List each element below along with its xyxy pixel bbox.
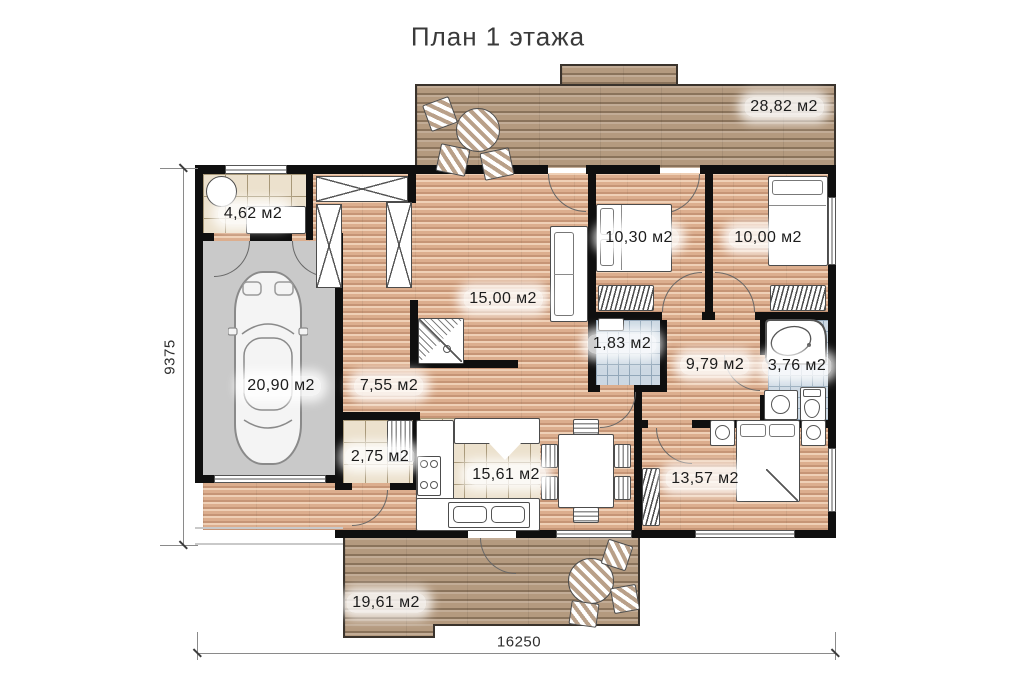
- area-label-bedroom-left: 10,30 м2: [599, 228, 679, 248]
- closet: [316, 176, 408, 202]
- round-sink: [206, 176, 237, 207]
- bathroom-sink: [764, 390, 798, 420]
- window: [225, 165, 287, 174]
- pillow: [769, 424, 795, 437]
- area-label-terrace-top: 28,82 м2: [744, 97, 824, 117]
- wall-segment: [335, 530, 468, 538]
- wall-segment: [702, 312, 715, 320]
- dining-table: [558, 434, 614, 508]
- wall-segment: [195, 233, 214, 241]
- driveway: [195, 527, 343, 545]
- wall-segment: [588, 165, 596, 392]
- sink-basin: [453, 506, 487, 523]
- chair: [573, 419, 599, 435]
- burner: [430, 460, 438, 468]
- pillow: [740, 424, 766, 437]
- floor-plan: План 1 этажа: [0, 0, 1024, 696]
- area-label-bedroom-bottom: 13,57 м2: [665, 469, 745, 489]
- pillow: [772, 180, 823, 195]
- wall-segment: [705, 165, 713, 320]
- wall-segment: [195, 165, 203, 483]
- dimension-height: 9375: [162, 336, 179, 377]
- page-title: План 1 этажа: [411, 22, 585, 53]
- dimension-extension: [197, 632, 198, 660]
- chair: [614, 476, 631, 500]
- area-label-garage: 20,90 м2: [241, 376, 321, 396]
- wall-segment: [335, 412, 420, 420]
- dimension-extension: [160, 545, 198, 546]
- window: [828, 197, 836, 265]
- kitchen-counter-corner: [488, 442, 522, 460]
- sofa-cushion-divider: [554, 274, 574, 275]
- area-label-bedroom-right: 10,00 м2: [728, 228, 808, 248]
- window: [556, 530, 632, 538]
- area-label-living: 15,00 м2: [463, 289, 543, 309]
- double-bed: [736, 420, 800, 502]
- blanket-fold: [766, 469, 798, 501]
- wall-segment: [516, 530, 556, 538]
- chair: [573, 507, 599, 523]
- patio-chair: [610, 584, 640, 614]
- area-label-kitchen: 15,61 м2: [466, 465, 546, 485]
- double-bed: [768, 176, 828, 266]
- area-label-laundry: 2,75 м2: [345, 447, 415, 467]
- area-label-wc: 1,83 м2: [587, 334, 657, 354]
- fireplace-diagonal: [419, 319, 462, 362]
- wall-segment: [634, 385, 642, 530]
- dimension-line-horizontal: [197, 653, 836, 654]
- burner: [420, 460, 428, 468]
- wall-segment: [195, 475, 214, 483]
- patio-chair: [568, 600, 599, 628]
- dimension-line-vertical: [183, 168, 184, 546]
- wardrobe: [770, 285, 826, 311]
- area-label-utility: 4,62 м2: [218, 204, 288, 224]
- area-label-hall: 7,55 м2: [354, 376, 424, 396]
- lamp: [806, 425, 821, 440]
- blanket-line: [769, 205, 826, 206]
- burner: [430, 481, 438, 489]
- wall-segment: [586, 165, 660, 174]
- wall-segment: [660, 320, 667, 385]
- garage-door: [214, 475, 326, 483]
- sink-basin: [491, 506, 525, 523]
- lamp: [715, 425, 730, 440]
- sofa: [550, 226, 588, 322]
- kitchen-counter-top: [454, 418, 540, 444]
- wardrobe: [598, 285, 654, 311]
- dimension-width: 16250: [494, 634, 544, 651]
- car-top-view: [228, 268, 308, 468]
- wall-segment: [632, 530, 695, 538]
- toilet-bowl: [804, 399, 820, 418]
- stove: [417, 456, 441, 496]
- wall-segment: [700, 165, 836, 174]
- window: [695, 530, 795, 538]
- sink-bowl: [771, 395, 790, 414]
- wall-segment: [588, 385, 600, 392]
- wall-segment: [335, 483, 352, 490]
- wall-segment: [640, 385, 667, 392]
- closet: [316, 204, 342, 288]
- wall-segment: [250, 233, 292, 241]
- wall-segment: [408, 165, 416, 203]
- chair: [541, 444, 558, 468]
- burner: [420, 481, 428, 489]
- patio-chair: [435, 143, 470, 177]
- area-label-bathroom: 3,76 м2: [762, 356, 832, 376]
- dimension-extension: [160, 168, 198, 169]
- area-label-terrace-bottom: 19,61 м2: [346, 593, 426, 613]
- closet: [386, 202, 412, 288]
- area-label-hall-bedrooms: 9,79 м2: [680, 355, 750, 375]
- wall-segment: [306, 165, 313, 240]
- wall-segment: [795, 530, 836, 538]
- patio-table: [456, 108, 500, 152]
- terrace-bottom-step: [343, 624, 435, 638]
- wardrobe: [642, 468, 660, 526]
- double-sink: [448, 502, 530, 528]
- dimension-extension: [835, 632, 836, 660]
- wall-segment: [326, 475, 343, 483]
- corner-fireplace: [418, 318, 464, 364]
- wall-segment: [410, 300, 418, 368]
- nightstand: [710, 420, 735, 446]
- toilet-tank: [803, 389, 821, 397]
- nightstand: [801, 420, 826, 446]
- washbasin: [598, 318, 624, 331]
- toilet: [800, 387, 826, 421]
- fireplace-dot: [443, 345, 451, 353]
- chair: [614, 444, 631, 468]
- window: [828, 448, 836, 512]
